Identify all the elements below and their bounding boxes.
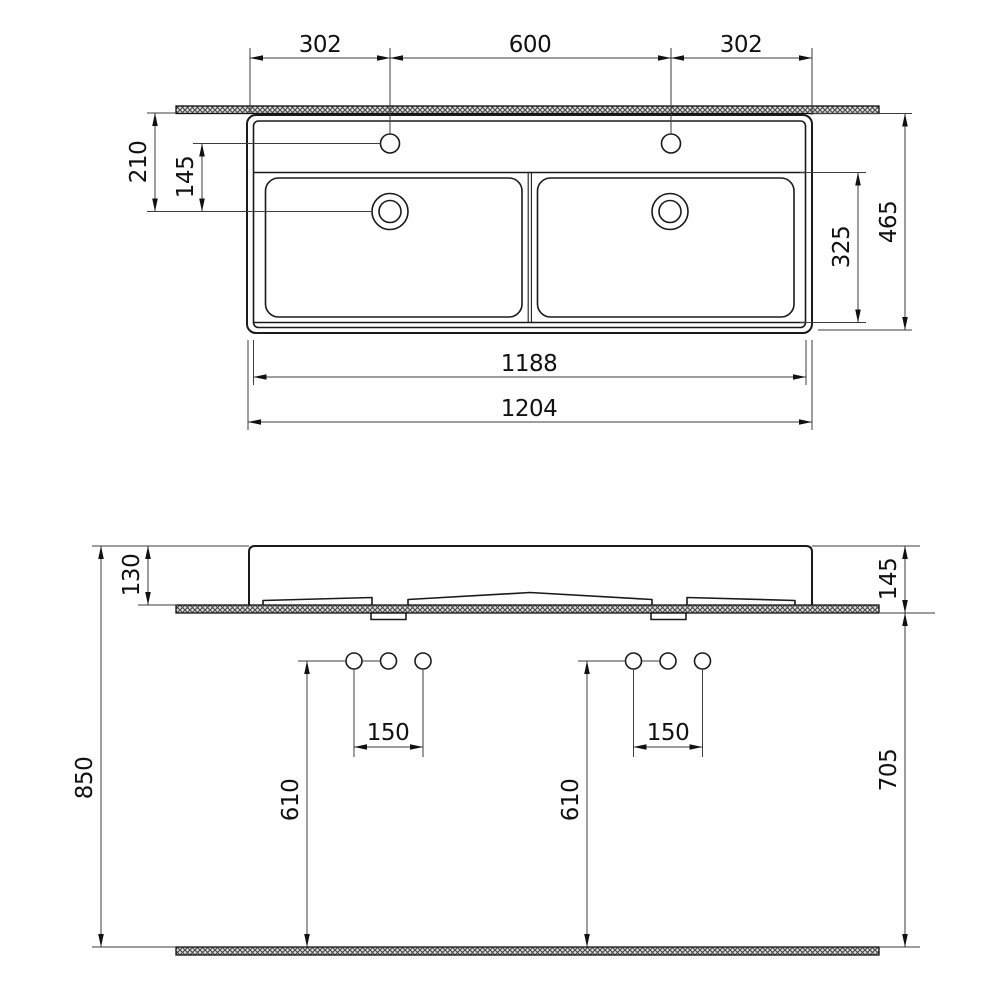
drain-tab-right: [651, 613, 686, 620]
dim-label-hole-spacing: 600: [509, 32, 551, 58]
dim-label-back-height: 130: [119, 554, 145, 596]
dim-label-supply-spacing-left: 150: [367, 720, 409, 746]
dim-label-total-depth: 465: [876, 201, 902, 243]
dim-label-drain-setback: 210: [126, 141, 152, 183]
dim-label-front-height: 145: [876, 558, 902, 600]
dim-label-total-width: 1204: [501, 396, 558, 422]
dim-label-hole-offset-right: 302: [720, 32, 762, 58]
dim-label-supply-spacing-right: 150: [647, 720, 689, 746]
floor-section-hatch: [176, 947, 879, 955]
washbasin-technical-drawing: 302 600 302 210 145 465 325 1188 1204: [0, 0, 990, 990]
dim-label-basin-depth: 325: [829, 226, 855, 268]
dim-label-hole-to-drain: 145: [173, 156, 199, 198]
dim-label-supply-height-right: 610: [558, 779, 584, 821]
wall-section-hatch-top-view: [176, 106, 879, 114]
drain-tab-left: [371, 613, 406, 620]
dim-label-hole-offset-left: 302: [299, 32, 341, 58]
technical-drawing-page: 302 600 302 210 145 465 325 1188 1204: [0, 0, 990, 990]
dim-label-rim-to-floor: 850: [72, 757, 98, 799]
dim-label-inner-width: 1188: [501, 351, 558, 377]
dim-label-supply-height-left: 610: [278, 779, 304, 821]
dim-label-under-rim-to-floor: 705: [876, 749, 902, 791]
wall-section-hatch-front-view: [176, 605, 879, 613]
